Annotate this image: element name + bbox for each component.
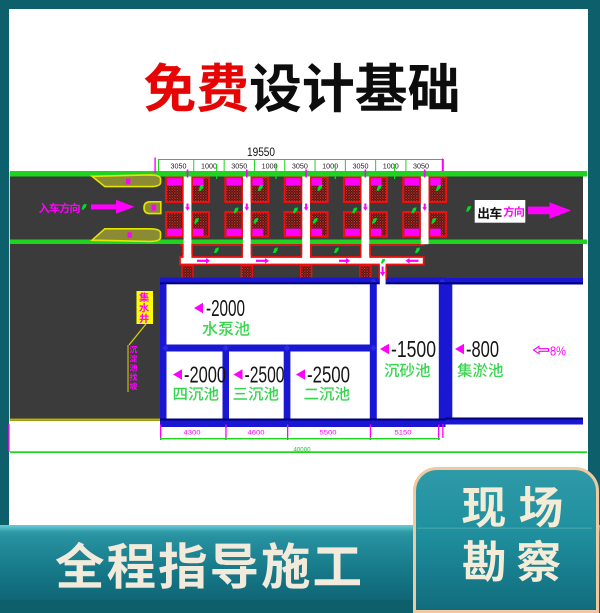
svg-text:3050: 3050 [231,164,247,171]
svg-text:-2000: -2000 [184,362,226,388]
svg-text:-2500: -2500 [307,362,350,388]
svg-text:-800: -800 [466,336,499,362]
svg-text:3050: 3050 [413,164,429,171]
svg-text:3050: 3050 [353,164,369,171]
svg-text:19550: 19550 [247,147,275,159]
svg-text:1000: 1000 [201,164,217,171]
svg-text:4600: 4600 [248,430,265,437]
svg-text:1000: 1000 [262,164,278,171]
svg-text:1000: 1000 [383,164,399,171]
svg-text:3050: 3050 [171,164,187,171]
svg-text:4300: 4300 [184,430,201,437]
svg-text:-2500: -2500 [245,362,285,388]
svg-text:-2000: -2000 [206,295,245,321]
svg-text:5150: 5150 [395,430,412,437]
svg-text:3050: 3050 [292,164,308,171]
svg-text:5500: 5500 [320,430,337,437]
svg-text:-1500: -1500 [391,336,436,362]
svg-text:8%: 8% [550,344,566,359]
